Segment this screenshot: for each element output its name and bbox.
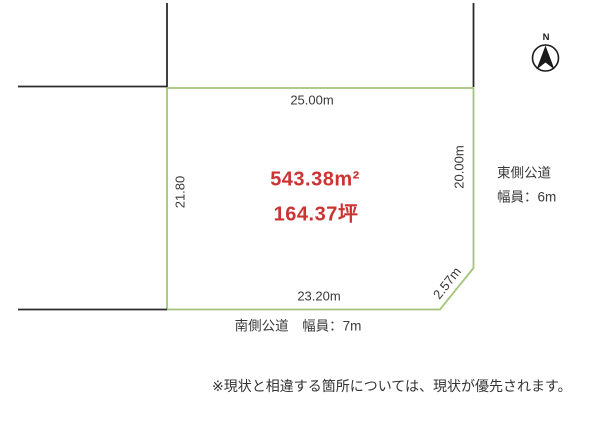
south-road-label: 南側公道 幅員：7m [235, 319, 362, 333]
north-arrow-icon [537, 46, 555, 70]
dim-bottom-label: 23.20m [297, 290, 340, 303]
disclaimer-note: ※現状と相違する箇所については、現状が優先されます。 [212, 376, 572, 396]
dim-right-label: 20.00m [453, 145, 466, 188]
compass-n-label: N [543, 32, 550, 43]
area-tsubo-label: 164.37坪 [274, 198, 359, 227]
compass: N [533, 32, 559, 71]
dim-left-label: 21.80 [174, 176, 187, 209]
area-sqm-label: 543.38m² [270, 169, 360, 192]
site-plan-diagram: N 25.00m 21.80 20.00m 23.20m 2.57m 543.3… [0, 0, 600, 439]
east-road-name-label: 東側公道 [497, 166, 551, 180]
dim-top-label: 25.00m [290, 94, 333, 107]
east-road-width-label: 幅員：6m [497, 190, 556, 204]
